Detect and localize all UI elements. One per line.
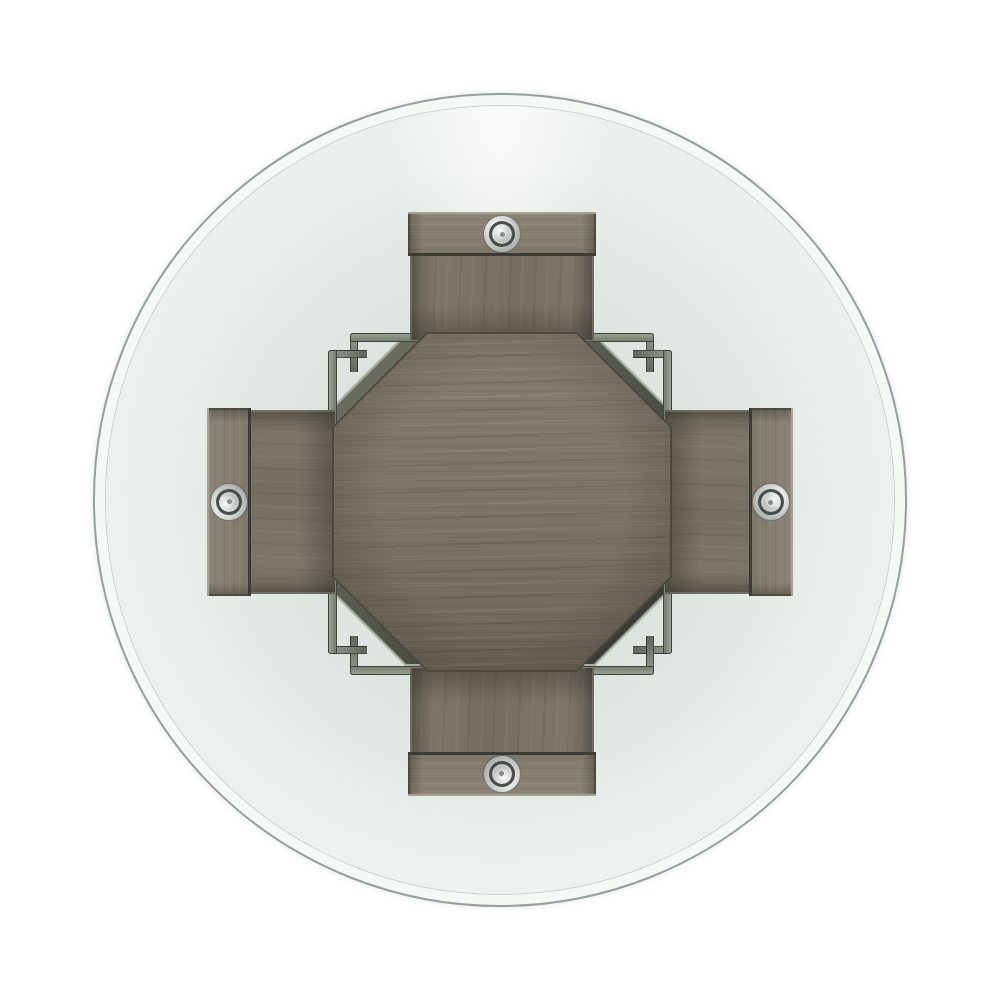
leg-face [410,668,594,752]
leg-shoulder-side [337,350,367,358]
leg-shoulder-side [646,636,654,666]
table-leg-right [665,410,793,594]
leg-shoulder-side [337,646,367,654]
leg-shoulder-side [633,350,663,358]
table-leg-left [207,410,335,594]
table-leg-bottom [410,668,594,796]
bolt-icon [211,484,247,520]
bolt-center [227,500,232,505]
bolt-icon [753,484,789,520]
table-leg-top [410,212,594,340]
bolt-icon [484,216,520,252]
leg-face [665,410,749,594]
pedestal-top-face [332,332,672,672]
bolt-center [500,232,505,237]
leg-face [410,256,594,340]
leg-face [251,410,335,594]
bolt-icon [484,756,520,792]
product-image [0,0,1000,1000]
bolt-center [769,500,774,505]
pedestal-base-group [0,0,1000,1000]
wood-surface [334,334,671,671]
bolt-center [500,772,505,777]
